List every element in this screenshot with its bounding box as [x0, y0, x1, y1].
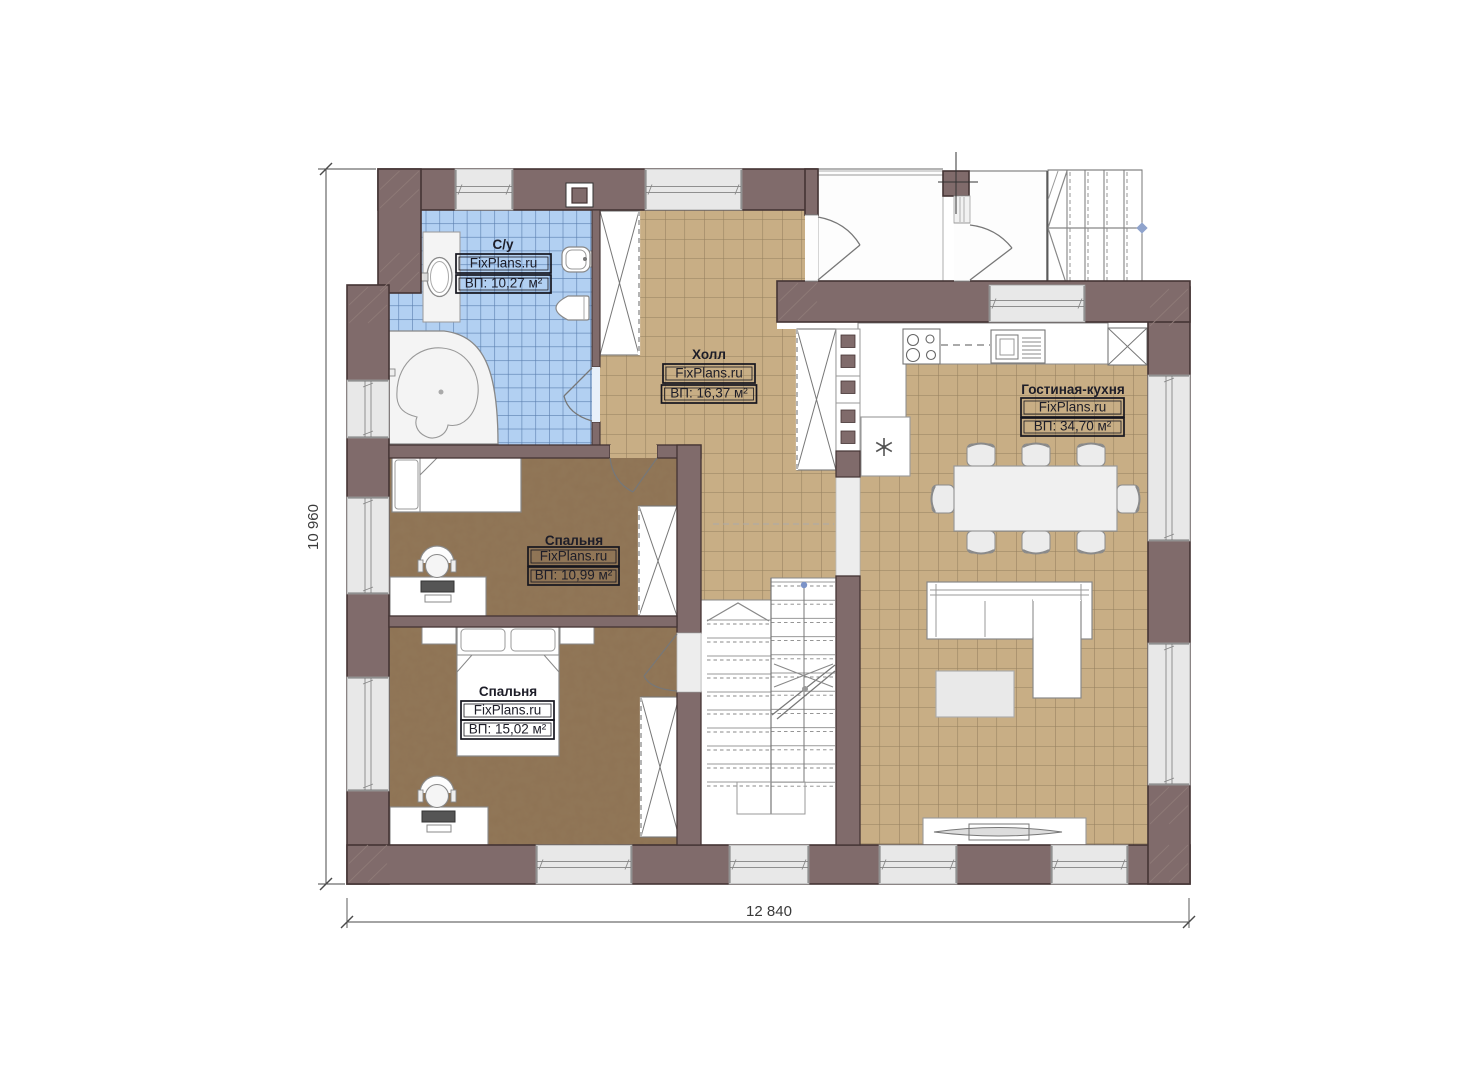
svg-text:ВП: 16,37 м²: ВП: 16,37 м²: [670, 386, 748, 401]
svg-text:FixPlans.ru: FixPlans.ru: [474, 703, 542, 718]
svg-text:Гостиная-кухня: Гостиная-кухня: [1021, 382, 1124, 397]
svg-text:Холл: Холл: [692, 347, 726, 362]
svg-text:ВП: 10,27 м²: ВП: 10,27 м²: [465, 276, 543, 291]
svg-text:10 960: 10 960: [305, 504, 322, 550]
svg-text:12 840: 12 840: [746, 903, 792, 920]
svg-text:Спальня: Спальня: [479, 684, 537, 699]
svg-text:FixPlans.ru: FixPlans.ru: [540, 549, 608, 564]
svg-text:FixPlans.ru: FixPlans.ru: [1039, 400, 1107, 415]
svg-text:FixPlans.ru: FixPlans.ru: [470, 256, 538, 271]
svg-text:ВП: 34,70 м²: ВП: 34,70 м²: [1034, 419, 1112, 434]
svg-text:Спальня: Спальня: [545, 533, 603, 548]
svg-text:ВП: 15,02 м²: ВП: 15,02 м²: [469, 722, 547, 737]
svg-text:ВП: 10,99 м²: ВП: 10,99 м²: [535, 568, 613, 583]
svg-text:FixPlans.ru: FixPlans.ru: [675, 366, 743, 381]
svg-text:С/у: С/у: [492, 237, 514, 252]
